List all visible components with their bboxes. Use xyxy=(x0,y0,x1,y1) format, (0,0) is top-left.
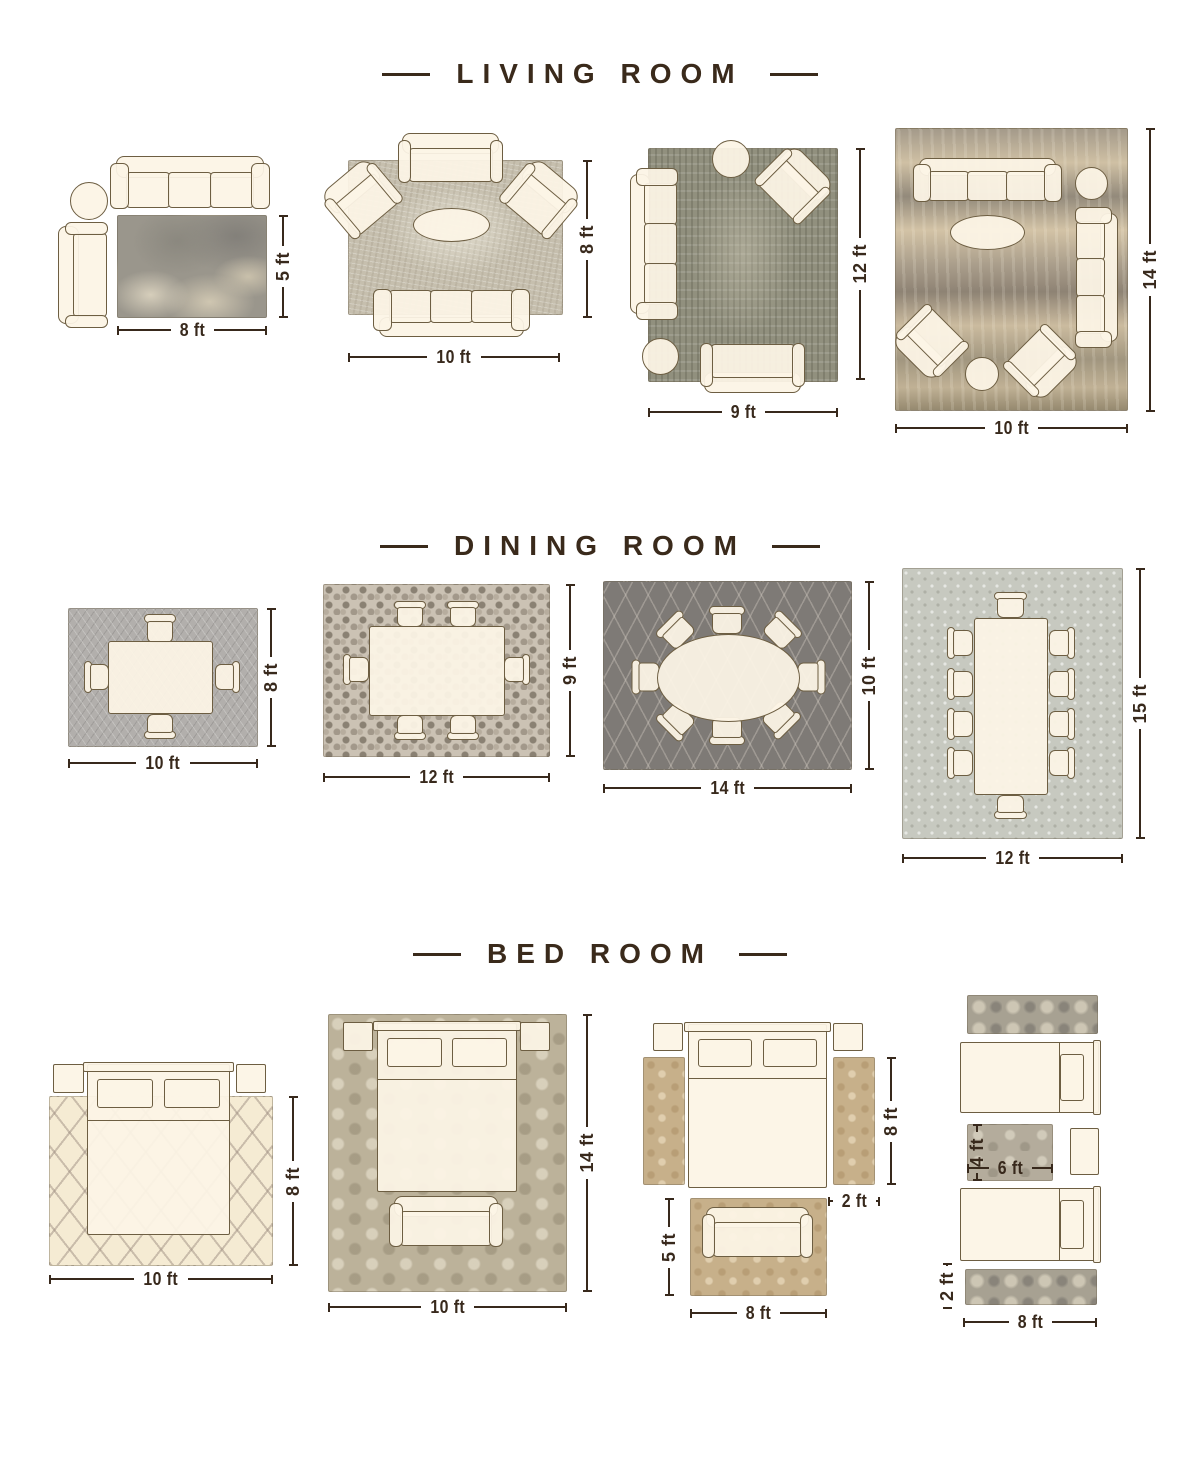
twin-bed xyxy=(960,1188,1099,1261)
dimension: 8 ft xyxy=(963,1311,1097,1333)
dimension-label: 6 ft xyxy=(991,1158,1029,1179)
bed-divider xyxy=(1059,1188,1060,1261)
runner-rug xyxy=(965,1269,1097,1305)
dim-line xyxy=(965,1321,1009,1323)
pillow xyxy=(1060,1200,1084,1248)
dim-tick xyxy=(973,1179,982,1181)
bed-pillows xyxy=(1060,1200,1084,1248)
nightstand xyxy=(1070,1128,1099,1175)
rug-size-guide: LIVING ROOM5 ft8 ft8 ft10 ft12 ft9 ft14 … xyxy=(0,0,1200,1467)
pillow xyxy=(1060,1054,1084,1101)
bed-divider xyxy=(1059,1042,1060,1113)
dimension-label: 8 ft xyxy=(1011,1312,1049,1333)
bed-pillows xyxy=(1060,1054,1084,1101)
dim-line xyxy=(1032,1167,1052,1169)
dim-line xyxy=(1052,1321,1096,1323)
runner-rug xyxy=(967,995,1098,1034)
bed-headboard xyxy=(1093,1040,1101,1115)
bed-headboard xyxy=(1093,1186,1101,1263)
layout-bed-twin-runners: 4 ft6 ft2 ft8 ft xyxy=(0,0,1200,1467)
dimension: 2 ft xyxy=(936,1263,958,1309)
dim-tick xyxy=(1051,1164,1053,1173)
dim-tick xyxy=(943,1307,952,1309)
dim-line xyxy=(969,1167,989,1169)
dim-tick xyxy=(1095,1318,1097,1327)
dimension-label: 2 ft xyxy=(937,1266,958,1307)
dimension: 6 ft xyxy=(967,1157,1053,1179)
twin-bed xyxy=(960,1042,1099,1113)
